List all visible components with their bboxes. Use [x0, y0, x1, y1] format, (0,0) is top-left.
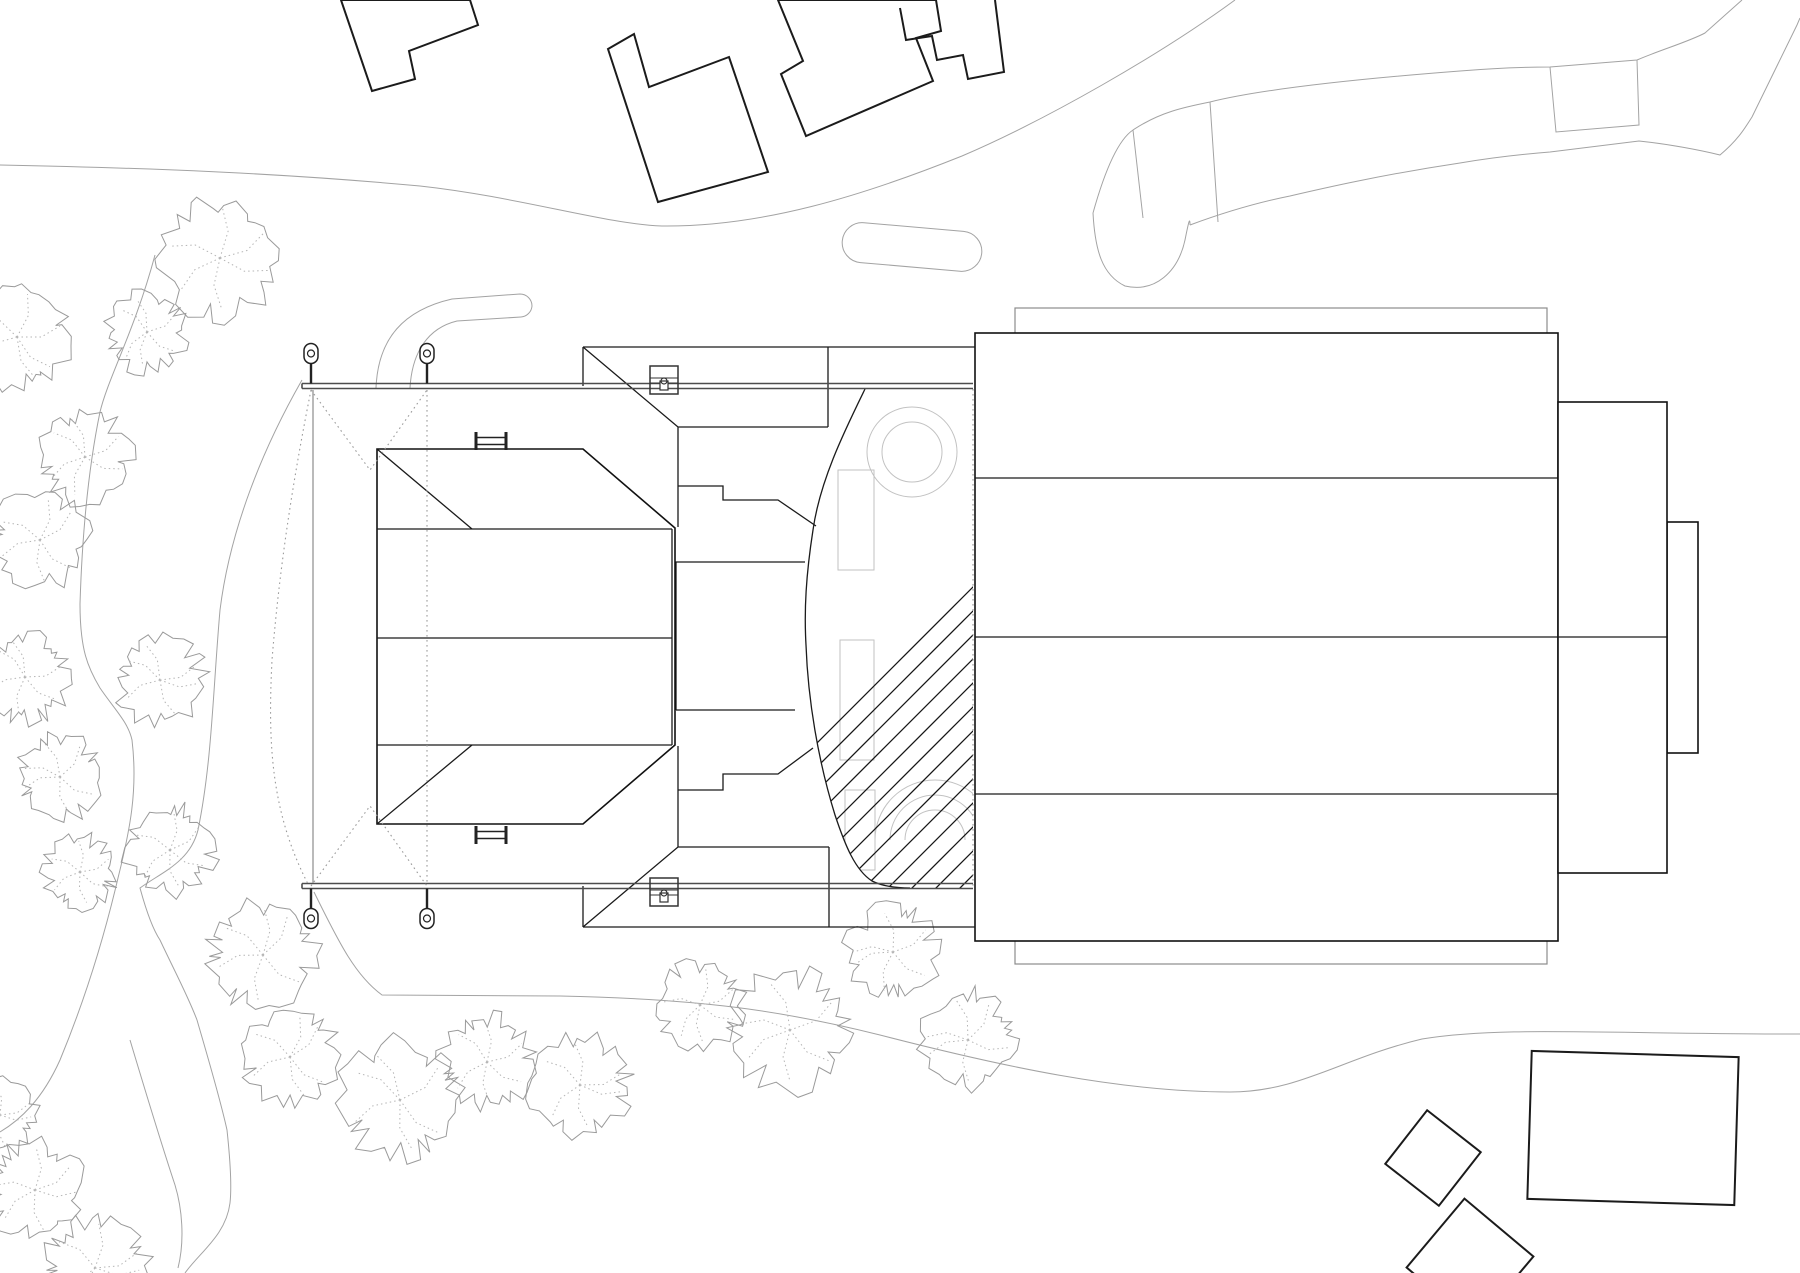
- middle-wing-bottom-edge: [583, 886, 975, 927]
- tree: [917, 986, 1020, 1093]
- canopy-pole-bottom: [304, 889, 318, 929]
- road-band-bottom-edge: [1190, 18, 1800, 225]
- canopy-beam-bottom: [302, 884, 973, 889]
- tree: [40, 1214, 153, 1273]
- context-buildings: [341, 0, 1004, 202]
- tree: [241, 1010, 341, 1108]
- road-band-divider-cell: [1133, 60, 1639, 222]
- canopy-pole-bottom: [420, 889, 434, 929]
- tree: [656, 959, 747, 1052]
- beam-table: [650, 878, 678, 906]
- east-building: [975, 333, 1698, 941]
- garden-pavilion-diamond: [1385, 1110, 1480, 1205]
- bench: [476, 432, 506, 450]
- context-building-d-stepped: [900, 0, 1004, 79]
- canopy-pole-top: [304, 344, 318, 384]
- garden-building-rect: [1527, 1051, 1738, 1205]
- courtyard-rect: [676, 562, 805, 710]
- tree: [121, 802, 219, 899]
- road-upper-contour: [0, 0, 1235, 226]
- west-house-outline: [377, 449, 675, 824]
- path-foot-shape: [1093, 213, 1190, 287]
- garden-pavilion-diamond-lower: [1407, 1199, 1534, 1273]
- tree: [727, 966, 854, 1097]
- east-annex-small: [1667, 522, 1698, 753]
- paved-capsule: [841, 221, 984, 273]
- tree: [0, 631, 72, 728]
- middle-wing-top-edge: [583, 347, 975, 386]
- tree: [0, 284, 71, 393]
- canopy-beam-top: [302, 384, 973, 389]
- context-building-c: [778, 0, 941, 136]
- west-house: [377, 449, 675, 824]
- tree: [18, 732, 101, 823]
- path-j-drive: [376, 294, 532, 388]
- tree: [526, 1032, 635, 1140]
- tree: [39, 832, 117, 912]
- beam-table: [650, 366, 678, 394]
- middle-wing-steps-top: [678, 486, 816, 526]
- context-building-a: [341, 0, 478, 91]
- middle-wing-steps-bottom: [678, 748, 813, 790]
- path-swing-west: [140, 380, 302, 1273]
- canopy-pole-top: [420, 344, 434, 384]
- tree: [335, 1033, 465, 1165]
- tree: [116, 632, 210, 728]
- swing-arc-dotted: [271, 390, 311, 884]
- site-plan-drawing: [0, 0, 1800, 1273]
- tree: [0, 1076, 40, 1150]
- road-band-top-edge: [1093, 0, 1742, 213]
- context-building-b: [608, 34, 768, 202]
- bench: [476, 826, 506, 844]
- south-east-structures: [1385, 1051, 1738, 1273]
- tree: [0, 1136, 84, 1238]
- site-plan-page: [0, 0, 1800, 1273]
- tree: [842, 901, 942, 998]
